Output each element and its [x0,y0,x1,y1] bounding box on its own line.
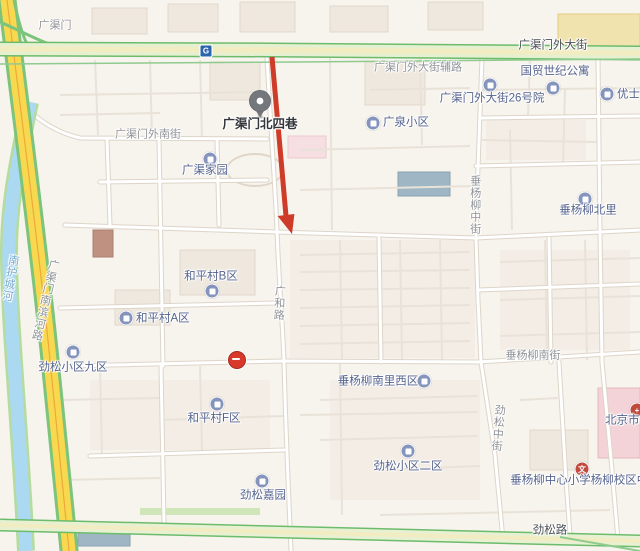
road-label-wainanjie: 广渠门外南街 [115,130,181,141]
road-label-chuiyangliu-zhongjie: 垂杨柳中街 [468,175,480,235]
teal-building [398,172,450,196]
brown-building [93,230,113,257]
residential-icon-hepingcun-a[interactable] [119,311,134,326]
map-canvas[interactable]: G 文 + 广渠门 广渠门外大街 广渠门外大街辅路 广渠门外南街 垂杨柳南街 劲… [0,0,640,551]
poi-label-26-hao-yuan[interactable]: 广渠门外大街26号院 [440,93,545,105]
poi-label-chuiyangliu-beili[interactable]: 垂杨柳北里 [559,205,617,217]
residential-icon-jinsong-erqu[interactable] [401,444,416,459]
road-label-guangqumen: 广渠门 [39,21,72,32]
poi-label-jinsong-jiayuan[interactable]: 劲松嘉园 [240,490,286,502]
road-label-chuiyangliu-nanjie: 垂杨柳南街 [506,351,561,362]
subway-station-icon[interactable]: G [200,45,213,58]
road-label-guanghelu: 广和路 [271,285,284,322]
pin-marker[interactable] [250,91,271,119]
residential-icon-jinsong-jiuqu[interactable] [66,345,81,360]
poi-label-hepingcun-a[interactable]: 和平村A区 [136,313,190,325]
poi-label-hospital-clipped[interactable]: 北京市垂 [605,415,640,427]
poi-label-guangqu-jiayuan[interactable]: 广渠家园 [182,165,228,177]
road-label-guangqumenwai-dajie: 广渠门外大街 [519,40,588,52]
road-label-fulu: 广渠门外大街辅路 [374,63,462,74]
poi-label-jinsong-erqu[interactable]: 劲松小区二区 [374,461,443,473]
poi-label-hepingcun-f[interactable]: 和平村F区 [187,413,240,425]
no-entry-sign-icon [228,351,246,369]
residential-icon-guomao-shiji[interactable] [546,81,561,96]
poi-label-guomao-shiji[interactable]: 国贸世纪公寓 [521,66,590,78]
residential-icon-jinsong-jiayuan[interactable] [255,474,270,489]
residential-icon-guangquan-xiaoqu[interactable] [366,116,381,131]
poi-label-jinsong-jiuqu[interactable]: 劲松小区九区 [39,362,108,374]
poi-label-guangquan-xiaoqu[interactable]: 广泉小区 [383,117,429,129]
map-base-layer [0,0,640,551]
residential-icon-hepingcun-f[interactable] [210,397,225,412]
green-hedge [140,508,260,515]
residential-icon-hepingcun-b[interactable] [205,284,220,299]
pinned-place-label[interactable]: 广渠门北四巷 [222,118,297,131]
residential-icon-nanli-xiqu[interactable] [417,374,432,389]
poi-label-youshige[interactable]: 优士阁 [617,89,640,101]
poi-label-hepingcun-b[interactable]: 和平村B区 [184,271,238,283]
road-label-jinsonglu: 劲松路 [533,525,568,537]
residential-icon-youshige[interactable] [600,87,615,102]
poi-label-school[interactable]: 垂杨柳中心小学杨柳校区中部 [510,475,640,487]
residential-icon-26-hao-yuan[interactable] [483,78,498,93]
pink-building-small [288,136,326,158]
poi-label-nanli-xiqu[interactable]: 垂杨柳南里西区 [338,376,419,388]
